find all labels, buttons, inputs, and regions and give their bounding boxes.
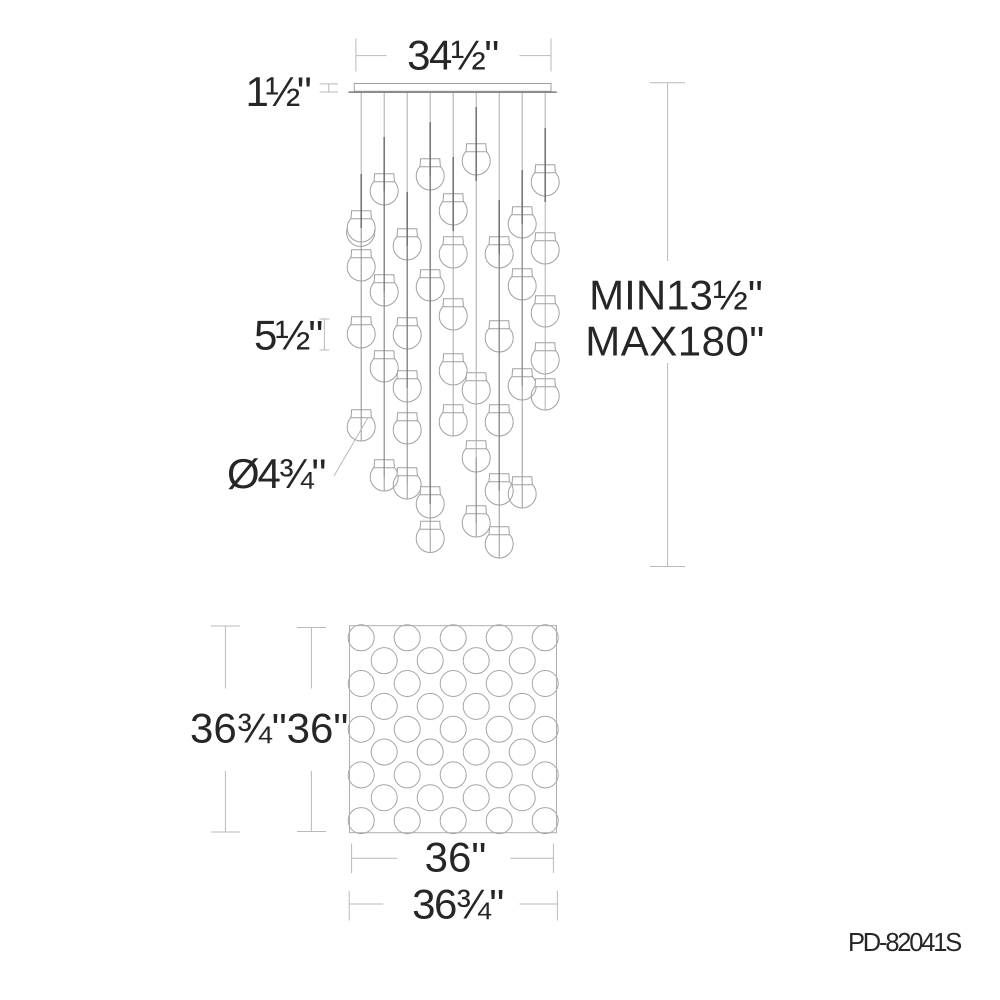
svg-text:MAX180": MAX180" xyxy=(585,318,765,365)
svg-text:36¾"36": 36¾"36" xyxy=(190,705,348,752)
svg-text:PD-82041S: PD-82041S xyxy=(848,929,961,957)
svg-text:36": 36" xyxy=(425,834,487,881)
svg-text:Ø4¾": Ø4¾" xyxy=(227,450,325,497)
svg-text:1½": 1½" xyxy=(246,68,311,115)
svg-text:36¾": 36¾" xyxy=(412,880,503,927)
svg-text:5½": 5½" xyxy=(254,312,322,359)
svg-text:MIN13½": MIN13½" xyxy=(589,272,763,319)
svg-text:34½": 34½" xyxy=(407,32,498,79)
